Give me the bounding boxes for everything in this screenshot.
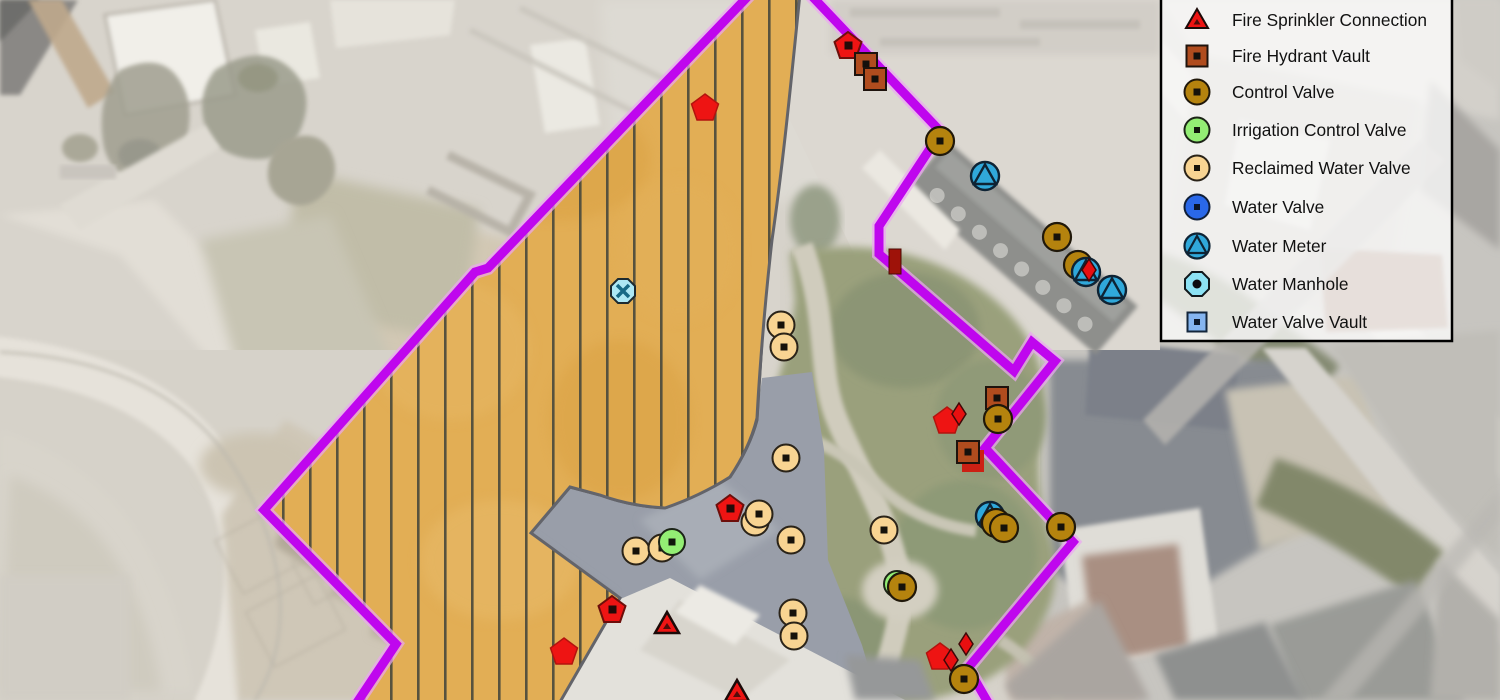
svg-text:Control Valve: Control Valve <box>1232 82 1334 102</box>
svg-text:Fire Sprinkler Connection: Fire Sprinkler Connection <box>1232 10 1427 30</box>
svg-text:Water Manhole: Water Manhole <box>1232 274 1349 294</box>
svg-text:Water Meter: Water Meter <box>1232 236 1327 256</box>
svg-text:Reclaimed Water Valve: Reclaimed Water Valve <box>1232 158 1411 178</box>
svg-text:Fire Hydrant Vault: Fire Hydrant Vault <box>1232 46 1370 66</box>
svg-text:Water Valve Vault: Water Valve Vault <box>1232 312 1367 332</box>
svg-text:Water Valve: Water Valve <box>1232 197 1324 217</box>
svg-text:Irrigation Control Valve: Irrigation Control Valve <box>1232 120 1407 140</box>
